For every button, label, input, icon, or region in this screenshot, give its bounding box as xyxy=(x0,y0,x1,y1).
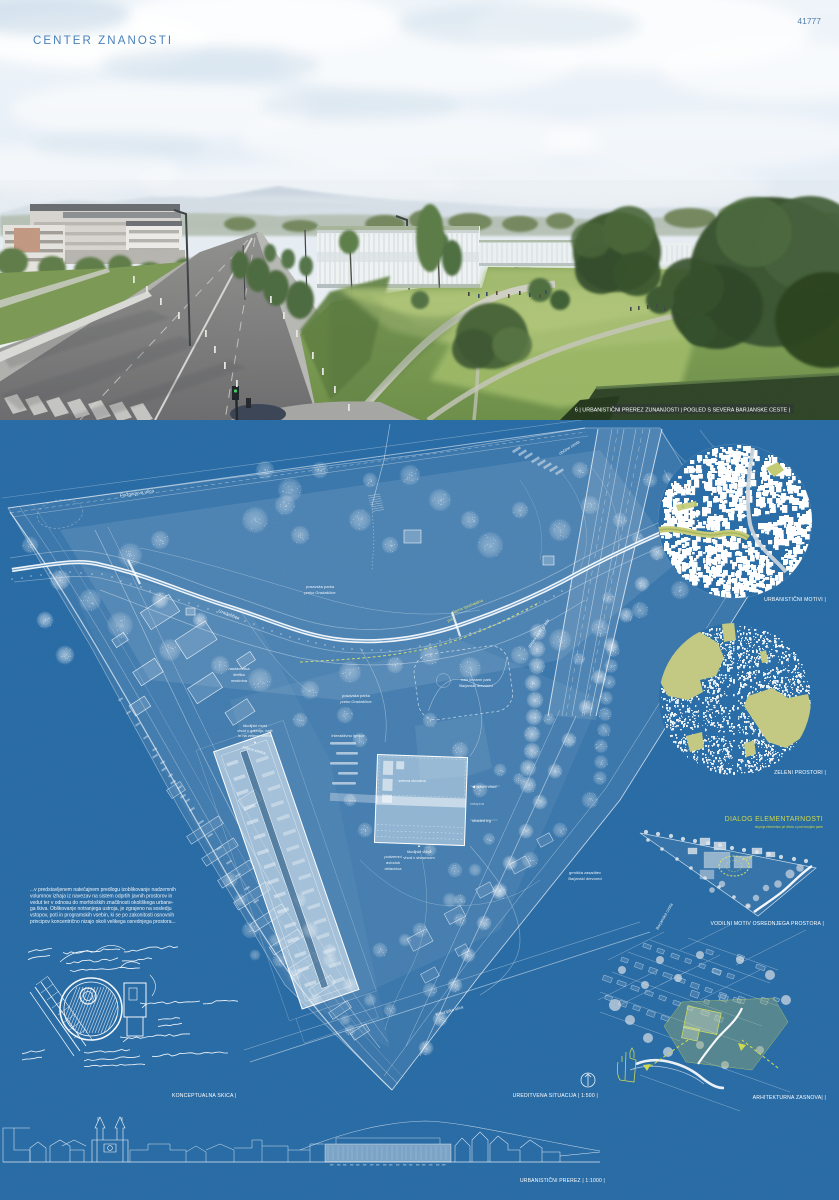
svg-text:UREDITVENA SITUACIJA | 1:500 |: UREDITVENA SITUACIJA | 1:500 | xyxy=(513,1093,598,1099)
svg-text:študijski vhod: študijski vhod xyxy=(407,849,431,854)
svg-text:avtodok: avtodok xyxy=(386,860,400,865)
svg-text:štefika: štefika xyxy=(233,672,245,677)
svg-text:interaktivno igrišče: interaktivno igrišče xyxy=(331,733,365,738)
svg-text:6 | URBANISTIČNI PREREZ ZUNANJ: 6 | URBANISTIČNI PREREZ ZUNANJOSTI | POG… xyxy=(575,407,790,414)
svg-text:posavska parka: posavska parka xyxy=(342,693,371,698)
svg-text:delavnica: delavnica xyxy=(385,866,403,871)
svg-text:URBANISTIČNI PREREZ | 1:1000 |: URBANISTIČNI PREREZ | 1:1000 | xyxy=(520,1177,605,1184)
svg-text:URBANISTIČNI MOTIVI |: URBANISTIČNI MOTIVI | xyxy=(764,596,826,603)
svg-text:stopnja elementov pri dtoriu s: stopnja elementov pri dtoriu s pod mozja… xyxy=(755,825,823,829)
svg-text:ZELENI PROSTORI |: ZELENI PROSTORI | xyxy=(774,770,826,776)
svg-text:zelena dvorana: zelena dvorana xyxy=(398,778,426,783)
svg-text:◀ glavni vhod: ◀ glavni vhod xyxy=(472,784,496,789)
svg-text:shaded trg: shaded trg xyxy=(472,818,491,823)
svg-text:vedut ter v odnosu do morfološ: vedut ter v odnosu do morfoloških značil… xyxy=(30,900,174,906)
svg-text:mestnina: mestnina xyxy=(231,678,248,683)
svg-text:vstopna: vstopna xyxy=(470,801,485,806)
svg-text:preko Gradaščice: preko Gradaščice xyxy=(340,699,372,704)
svg-text:preko Gradaščice: preko Gradaščice xyxy=(304,590,336,595)
svg-text:volumnov izhaja iz navezav na: volumnov izhaja iz navezav na sistem odp… xyxy=(30,893,173,899)
svg-text:41777: 41777 xyxy=(797,16,821,26)
svg-text:CENTER ZNANOSTI: CENTER ZNANOSTI xyxy=(33,35,173,47)
svg-text:ga tkiva. Oblikovanje notranje: ga tkiva. Oblikovanje notranjega ustroja… xyxy=(30,906,172,912)
svg-text:principov koncentrično nizajo: principov koncentrično nizajo okoli veli… xyxy=(30,919,176,925)
svg-text:nastavniška: nastavniška xyxy=(228,666,250,671)
svg-text:Barjanski drevored: Barjanski drevored xyxy=(568,876,601,881)
svg-text:in na zeleno streho: in na zeleno streho xyxy=(238,733,273,738)
svg-text:▲: ▲ xyxy=(417,843,421,848)
svg-text:DIALOG ELEMENTARNOSTI: DIALOG ELEMENTARNOSTI xyxy=(725,816,823,823)
svg-text:rizki linearni park: rizki linearni park xyxy=(461,677,491,682)
svg-text:posavska parka: posavska parka xyxy=(306,584,335,589)
svg-text:grmišča zasaditev: grmišča zasaditev xyxy=(569,870,601,875)
svg-text:Barjanski drevored: Barjanski drevored xyxy=(459,683,492,688)
svg-text:...v predstavljenem natečajnem: ...v predstavljenem natečajnem predlogu … xyxy=(30,887,176,893)
svg-text:podzemni: podzemni xyxy=(384,854,401,859)
svg-text:vstopov, poti in programskih v: vstopov, poti in programskih vsebin, ki … xyxy=(30,913,174,919)
svg-text:▼: ▼ xyxy=(253,740,257,745)
svg-text:KONCEPTUALNA SKICA |: KONCEPTUALNA SKICA | xyxy=(172,1093,237,1099)
svg-text:ARHITEKTURNA ZASNOVA| |: ARHITEKTURNA ZASNOVA| | xyxy=(753,1095,826,1101)
svg-text:vhod v showroom: vhod v showroom xyxy=(403,855,435,860)
